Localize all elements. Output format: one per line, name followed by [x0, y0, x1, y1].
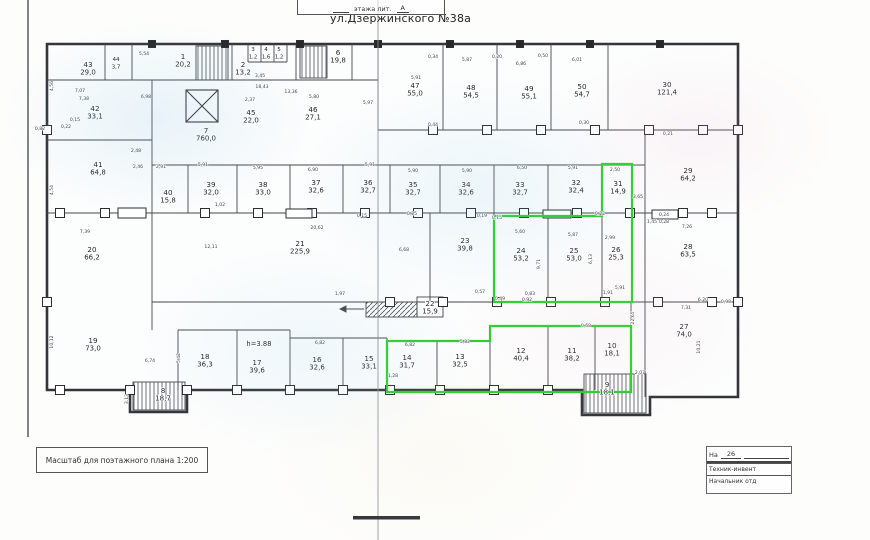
dimension-label: 5,87: [568, 232, 578, 238]
room-area: 18,1: [599, 389, 615, 397]
room-area: 14,9: [610, 188, 626, 196]
dimension-label: 6,98: [141, 94, 151, 100]
room-area: 25,3: [608, 254, 624, 262]
column: [734, 298, 743, 307]
dimension-label: 0,92: [522, 297, 532, 303]
dimension-label: 0,30: [579, 120, 589, 126]
column: [183, 386, 192, 395]
dimension-label: 5,90: [462, 168, 472, 174]
dimension-label: 0,28: [659, 219, 669, 225]
room-area: 18,7: [155, 395, 171, 403]
room-area: 15,9: [422, 308, 438, 316]
dimension-label: 0,15: [70, 117, 80, 123]
dimension-label: 0,25: [407, 211, 417, 217]
dimension-label: 0,24: [659, 212, 669, 218]
dimension-label: 0,82: [35, 126, 45, 132]
dimension-label: 0,22: [595, 211, 605, 217]
column-filled: [517, 41, 524, 48]
room-area: 53,2: [513, 255, 529, 263]
dimension-label: 1,02: [215, 202, 225, 208]
room-area: 32,6: [458, 189, 474, 197]
dimension-label: 4,54: [49, 185, 55, 195]
room-area: 32,7: [405, 189, 421, 197]
room-area: 32,5: [452, 361, 468, 369]
room-area: 760,0: [196, 135, 216, 143]
dimension-label: 0,68: [581, 323, 591, 329]
room-area: 1,6: [262, 55, 271, 61]
room-area: 22,0: [243, 117, 259, 125]
stairs-room9: [584, 374, 646, 413]
dimension-label: 7,39: [80, 229, 90, 235]
dimension-label: 1,91: [603, 290, 613, 296]
room-number: 5: [277, 47, 281, 53]
room-area: 64,8: [90, 169, 106, 177]
room-area: 32,0: [203, 189, 219, 197]
column: [386, 298, 395, 307]
column: [439, 298, 448, 307]
dimension-label: 5,91: [615, 285, 625, 291]
room-area: 66,2: [84, 254, 100, 262]
dimension-label: 6,82: [315, 340, 325, 346]
room-area: 39,6: [249, 367, 265, 375]
dimension-label: 9,71: [536, 259, 542, 269]
dimension-label: 7,26: [682, 224, 692, 230]
dimension-label: 0,49: [495, 296, 505, 302]
room-area: 31,7: [399, 362, 415, 370]
dimension-label: 6,90: [308, 167, 318, 173]
room-number: 4: [264, 47, 268, 53]
column: [483, 126, 492, 135]
room-area: 15,8: [160, 197, 176, 205]
column-filled: [657, 41, 664, 48]
room-area: 29,0: [80, 69, 96, 77]
doorway-opening: [286, 209, 312, 218]
column: [201, 209, 210, 218]
room-number: 3: [251, 47, 255, 53]
room-area: 1,2: [249, 55, 258, 61]
dimension-label: 10,12: [49, 335, 55, 348]
dimension-label: 0,50: [538, 53, 548, 59]
room-area: 55,1: [521, 93, 537, 101]
column: [286, 386, 295, 395]
dimension-label: 5,42: [176, 353, 182, 363]
room-area: 40,4: [513, 355, 529, 363]
dimension-label: 10,21: [696, 340, 702, 353]
inventory-stamp-table: На 26 Техник-инвент Начальник отд: [706, 446, 792, 494]
room-area: 53,0: [566, 255, 582, 263]
dimension-label: 6,82: [405, 342, 415, 348]
column: [708, 298, 717, 307]
dimension-label: 5,91: [568, 165, 578, 171]
room-area: 19,8: [330, 57, 346, 65]
dimension-label: 5,91: [365, 162, 375, 168]
dimension-label: 1,45: [647, 219, 657, 225]
room-area: 32,4: [568, 187, 584, 195]
dimension-label: 2,37: [245, 97, 255, 103]
column: [708, 209, 717, 218]
dimension-label: 1,28: [388, 373, 398, 379]
dimension-label: 5,54: [139, 51, 149, 57]
column: [101, 209, 110, 218]
stamp-row-chief: Начальник отд: [707, 475, 791, 487]
column: [544, 386, 553, 395]
dimension-label: 0,15: [357, 213, 367, 219]
column-filled: [149, 41, 156, 48]
room-area: 39,8: [457, 245, 473, 253]
room-area: 32,6: [309, 364, 325, 372]
room-area: 55,0: [407, 90, 423, 98]
dimension-label: 6,74: [145, 358, 155, 364]
room-area: 1,2: [275, 55, 284, 61]
dimension-label: 20,62: [310, 225, 323, 231]
column: [233, 386, 242, 395]
dimension-label: 0,57: [475, 289, 485, 295]
room-area: 54,5: [463, 92, 479, 100]
column: [734, 126, 743, 135]
floor-stamp-text: этажа лит.: [354, 5, 391, 13]
dimension-label: 0,19: [477, 213, 487, 219]
dimension-label: 2,48: [131, 148, 141, 154]
blank-line: [744, 452, 789, 459]
room-area: 32,7: [360, 187, 376, 195]
dimension-label: 3,45: [255, 73, 265, 79]
dimension-label: 18,43: [255, 84, 268, 90]
column: [436, 386, 445, 395]
room-area: 32,6: [308, 187, 324, 195]
dimension-label: 0,20: [492, 54, 502, 60]
na-label: На: [709, 451, 718, 459]
doorway-opening: [118, 208, 146, 218]
dimension-label: 5,91: [198, 162, 208, 168]
dimension-label: 0,44: [428, 122, 438, 128]
na-value: 26: [721, 450, 741, 459]
column: [591, 126, 600, 135]
column: [254, 209, 263, 218]
dimension-label: 6,50: [517, 165, 527, 171]
column: [490, 386, 499, 395]
stamp-row-technician: Техник-инвент: [707, 463, 791, 475]
room-area: 64,2: [680, 175, 696, 183]
dimension-label: 13,36: [284, 89, 297, 95]
height-annotation: h=3.88: [246, 340, 271, 348]
column: [645, 126, 654, 135]
dimension-label: 5,97: [363, 100, 373, 106]
dimension-label: 2,50: [610, 167, 620, 173]
scan-bottom-mark: [353, 516, 420, 520]
dimension-label: 5,82: [460, 339, 470, 345]
scanned-floor-plan-page: ул.Дзержинского №38а этажа лит. А: [0, 0, 870, 540]
dimension-label: 5,87: [462, 57, 472, 63]
dimension-label: 0,83: [525, 291, 535, 297]
column: [43, 298, 52, 307]
scale-note: Масштаб для поэтажного плана 1:200: [36, 447, 208, 473]
room-area: 27,1: [305, 114, 321, 122]
dimension-label: 22,65: [630, 311, 636, 324]
dimension-label: 2,99: [605, 235, 615, 241]
room-area: 54,7: [574, 91, 590, 99]
dimension-label: 0,34: [428, 54, 438, 60]
dimension-label: 7,38: [79, 96, 89, 102]
column: [56, 209, 65, 218]
room-area: 33,0: [255, 189, 271, 197]
dimension-label: 5,95: [253, 165, 263, 171]
stairs-room1: [196, 46, 228, 80]
room-area: 63,5: [680, 251, 696, 259]
litera-value: А: [397, 4, 409, 13]
column: [626, 209, 635, 218]
room-area: 20,2: [175, 61, 191, 69]
annotations-layer: h=3.88: [246, 340, 271, 348]
column-filled: [587, 41, 594, 48]
dimension-label: 0,98: [721, 299, 731, 305]
room-area: 33,1: [87, 113, 103, 121]
column: [339, 386, 348, 395]
dimension-label: 7,07: [75, 88, 85, 94]
column-filled: [297, 41, 304, 48]
dimension-label: 5,60: [515, 229, 525, 235]
room-number: 44: [112, 57, 120, 63]
dimension-label: 12,11: [204, 244, 217, 250]
dimension-label: 0,15: [492, 215, 502, 221]
room-area: 121,4: [657, 89, 678, 97]
column: [654, 298, 663, 307]
dimension-label: 3,13: [124, 394, 130, 404]
room-area: 18,1: [604, 350, 620, 358]
room-area: 38,2: [564, 355, 580, 363]
column: [56, 386, 65, 395]
dimension-label: 6,86: [516, 61, 526, 67]
dimension-label: 6,13: [588, 254, 594, 264]
room-area: 36,3: [197, 361, 213, 369]
column: [537, 126, 546, 135]
column: [679, 209, 688, 218]
dimension-label: 2,46: [133, 164, 143, 170]
dimension-label: 1,97: [335, 291, 345, 297]
room-area: 33,1: [361, 363, 377, 371]
column: [467, 209, 476, 218]
column-filled: [447, 41, 454, 48]
room-area: 74,0: [676, 331, 692, 339]
dimension-label: 4,56: [49, 81, 55, 91]
room-area: 13,2: [235, 69, 251, 77]
room-area: 32,7: [512, 189, 528, 197]
plan-header-stamp: этажа лит. А: [297, 0, 445, 15]
room-area: 73,0: [85, 345, 101, 353]
dimension-label: 2,07: [635, 370, 645, 376]
column: [126, 386, 135, 395]
column-filled: [222, 41, 229, 48]
stairs-room6: [300, 46, 327, 78]
dimension-label: 6,20: [698, 297, 708, 303]
dimension-label: 6,68: [399, 247, 409, 253]
room-area: 225,9: [290, 248, 310, 256]
room-area: 3,7: [112, 65, 121, 71]
dimension-label: 5,90: [408, 168, 418, 174]
dimension-label: 7,31: [681, 305, 691, 311]
dimension-label: 0,22: [61, 124, 71, 130]
dimension-label: 3,65: [633, 194, 643, 200]
blank-line: [333, 5, 349, 13]
dimension-label: 5,80: [309, 94, 319, 100]
dimension-label: 0,21: [663, 131, 673, 137]
column: [699, 126, 708, 135]
dimension-label: 2,91: [156, 164, 166, 170]
dimension-label: 6,01: [572, 57, 582, 63]
